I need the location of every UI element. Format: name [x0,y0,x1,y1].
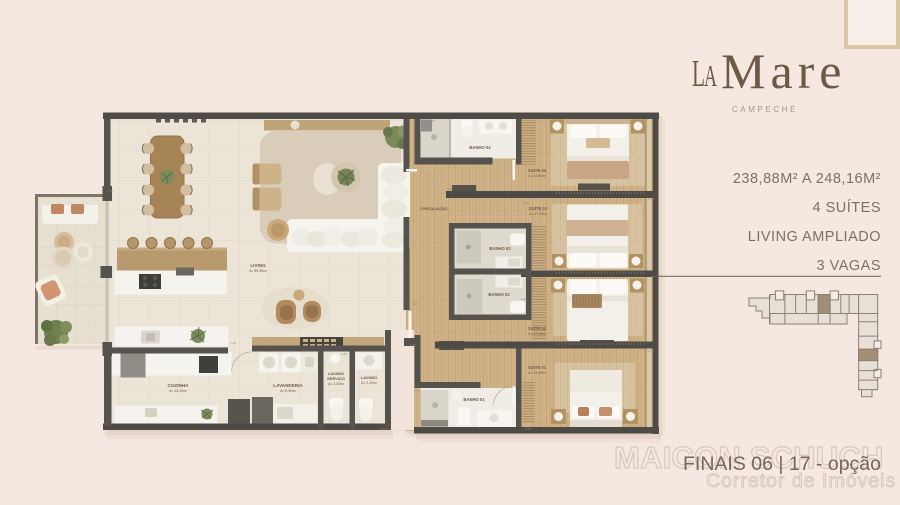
svg-text:1,05: 1,05 [341,352,347,356]
svg-text:4,75: 4,75 [648,349,654,353]
svg-text:4 SUÍTES: 4 SUÍTES [813,199,881,216]
svg-text:LIVING AMPLIADO: LIVING AMPLIADO [748,229,881,245]
svg-text:A= 13,10m²: A= 13,10m² [169,389,187,393]
svg-text:3 VAGAS: 3 VAGAS [817,258,881,274]
svg-text:BANHO 04: BANHO 04 [469,145,491,150]
svg-text:SUITE 02: SUITE 02 [528,326,547,331]
svg-text:1,75: 1,75 [523,201,529,205]
svg-text:SERVIÇO: SERVIÇO [327,376,345,381]
svg-text:BANHO 02: BANHO 02 [488,292,510,297]
svg-text:6,50: 6,50 [107,189,113,193]
svg-text:FINAIS 06 | 17 - opção: FINAIS 06 | 17 - opção [683,453,881,475]
svg-text:A= 89,35m²: A= 89,35m² [249,269,267,273]
svg-text:A= 17,15m²: A= 17,15m² [529,212,547,216]
svg-text:SUITE 01: SUITE 01 [528,365,547,370]
svg-text:1,00: 1,00 [447,187,453,191]
svg-text:0,40: 0,40 [412,302,418,306]
svg-text:A: A [704,58,717,93]
svg-text:A= 19,95m²: A= 19,95m² [528,371,546,375]
svg-text:A= 14,80m²: A= 14,80m² [528,174,546,178]
svg-text:CIRCULAÇÃO: CIRCULAÇÃO [421,206,448,211]
svg-text:2,00: 2,00 [380,427,386,431]
svg-text:BANHO 03: BANHO 03 [489,246,511,251]
svg-text:4,70: 4,70 [648,197,654,201]
svg-text:SUITE 04: SUITE 04 [528,168,547,173]
svg-text:8,63: 8,63 [429,119,435,123]
svg-text:COZINHA: COZINHA [168,383,190,388]
svg-text:1,15: 1,15 [230,341,236,345]
svg-text:CAMPECHE: CAMPECHE [732,105,798,114]
svg-text:4,20: 4,20 [410,343,416,347]
svg-text:LIVING: LIVING [250,263,266,268]
svg-text:BANHO 01: BANHO 01 [463,397,485,402]
svg-text:238,88M² A 248,16M²: 238,88M² A 248,16M² [733,171,881,187]
svg-text:A= 2,20m²: A= 2,20m² [328,382,345,386]
svg-text:Mare: Mare [721,43,847,99]
svg-text:LAVANDERIA: LAVANDERIA [273,383,303,388]
svg-text:SUITE 03: SUITE 03 [529,206,548,211]
svg-text:LAVABO: LAVABO [361,375,377,380]
svg-text:2,20: 2,20 [525,427,531,431]
svg-text:A= 2,20m²: A= 2,20m² [361,381,378,385]
svg-text:1,40: 1,40 [521,297,527,301]
svg-text:A= 17,15m²: A= 17,15m² [528,332,546,336]
svg-text:A= 5,30m²: A= 5,30m² [280,389,297,393]
